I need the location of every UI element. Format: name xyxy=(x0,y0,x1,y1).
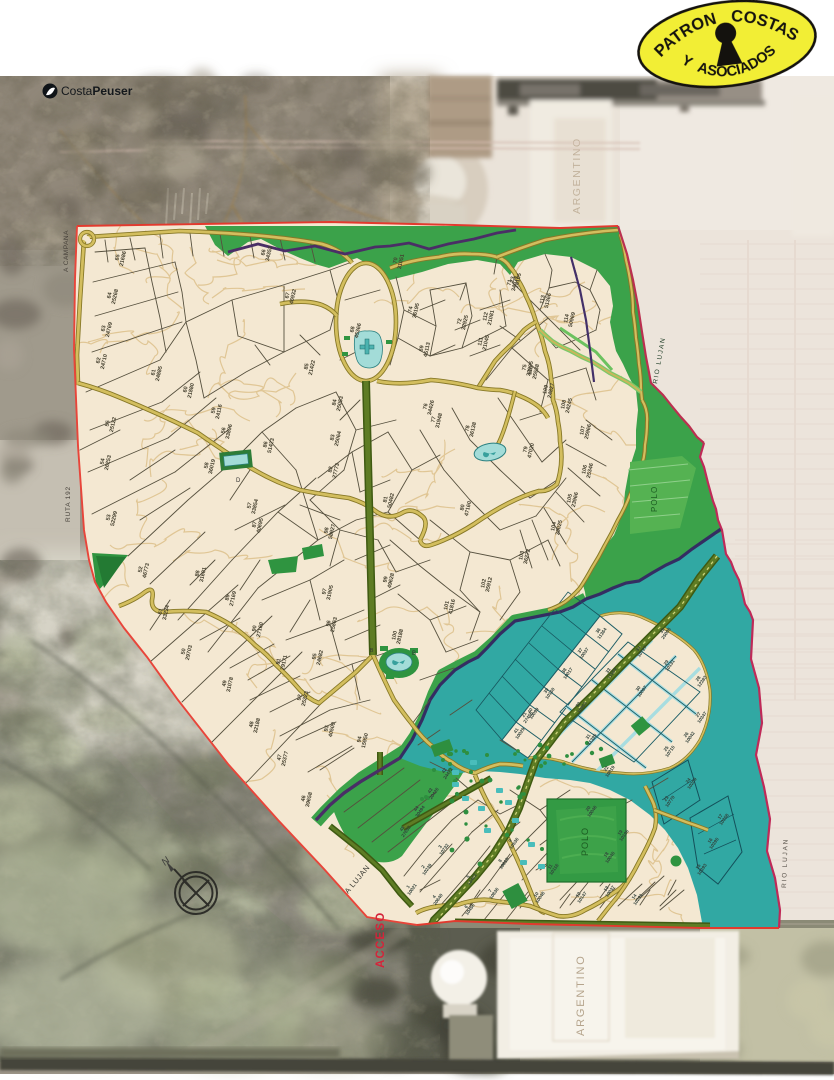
svg-text:A CAMPANA: A CAMPANA xyxy=(63,230,70,272)
svg-text:CostaPeuser: CostaPeuser xyxy=(61,84,133,98)
svg-text:B: B xyxy=(412,651,416,657)
svg-text:D: D xyxy=(236,478,241,484)
svg-text:ACCESO: ACCESO xyxy=(375,912,387,968)
svg-text:ARGENTINO: ARGENTINO xyxy=(575,954,587,1036)
svg-text:RUTA 192: RUTA 192 xyxy=(65,486,72,522)
svg-text:POLO: POLO xyxy=(580,827,590,856)
svg-text:POLO: POLO xyxy=(650,486,659,512)
